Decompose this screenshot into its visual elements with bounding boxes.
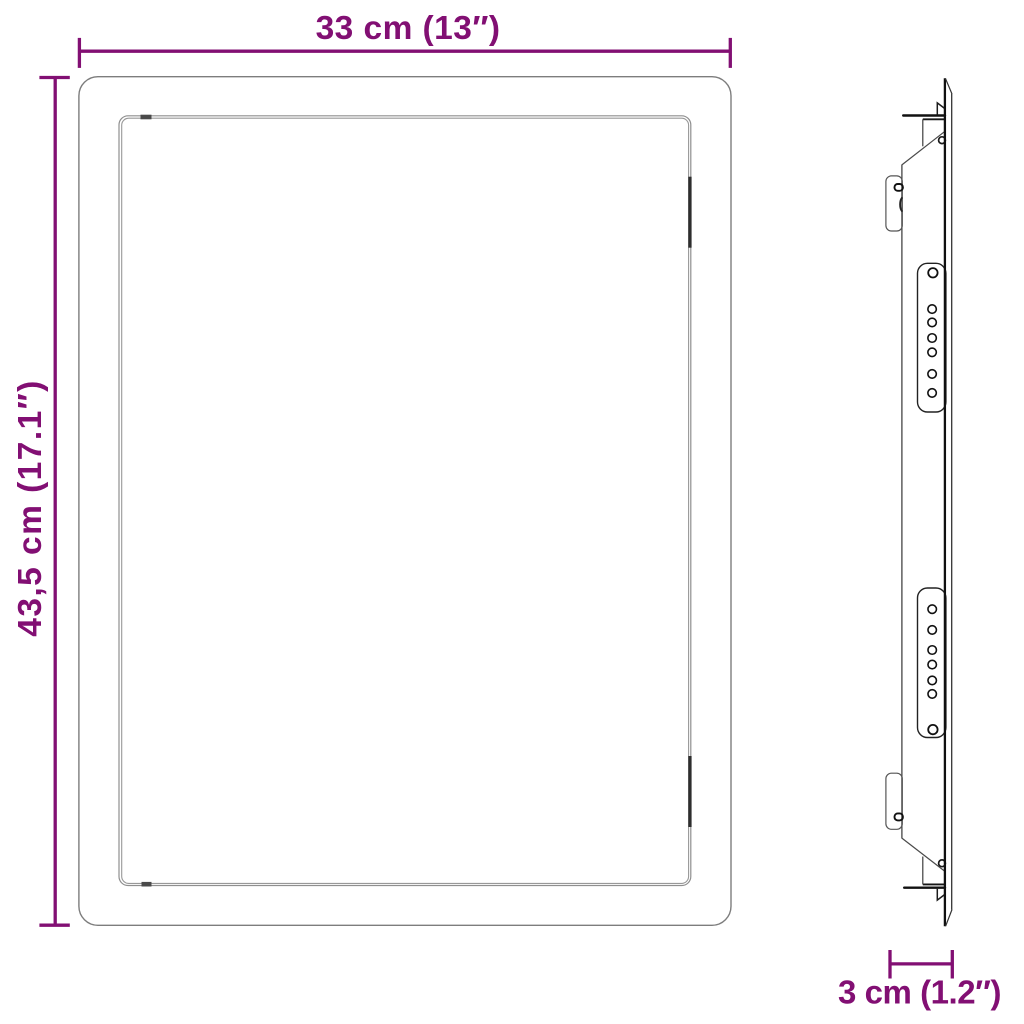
svg-text:33 cm (13″): 33 cm (13″) xyxy=(316,10,501,47)
svg-text:43,5 cm (17.1″): 43,5 cm (17.1″) xyxy=(12,379,49,637)
svg-text:3 cm (1.2″): 3 cm (1.2″) xyxy=(838,974,1001,1011)
